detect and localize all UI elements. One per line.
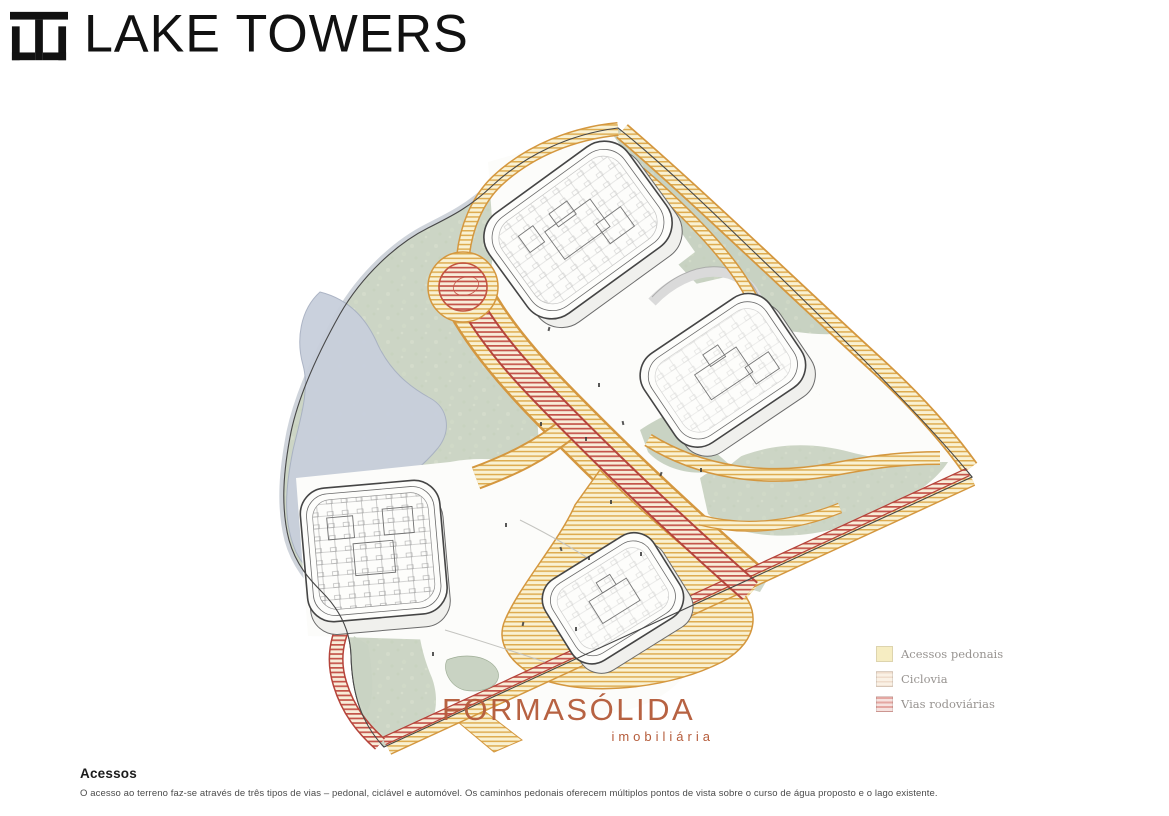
brand-logo[interactable]: LAKE TOWERS <box>10 8 469 64</box>
legend-label: Acessos pedonais <box>901 647 1003 661</box>
lt-monogram-icon <box>10 10 68 64</box>
site-plan <box>255 110 980 760</box>
section-body: O acesso ao terreno faz-se através de tr… <box>80 788 1090 799</box>
acessos-section: Acessos O acesso ao terreno faz-se atrav… <box>80 766 1090 799</box>
legend-item-pedestrian: Acessos pedonais <box>876 646 1003 662</box>
page: LAKE TOWERS <box>0 0 1169 816</box>
legend-label: Vias rodoviárias <box>901 697 995 711</box>
legend-label: Ciclovia <box>901 672 948 686</box>
legend-item-roads: Vias rodoviárias <box>876 696 1003 712</box>
brand-name: LAKE TOWERS <box>84 7 469 60</box>
legend-swatch-cycleway-icon <box>876 671 893 687</box>
section-heading: Acessos <box>80 766 1090 781</box>
site-plan-illustration <box>255 110 980 760</box>
legend-item-cycleway: Ciclovia <box>876 671 1003 687</box>
building-3 <box>298 478 452 637</box>
legend-swatch-pedestrian-icon <box>876 646 893 662</box>
legend-swatch-roads-icon <box>876 696 893 712</box>
map-legend: Acessos pedonais Ciclovia Vias rodoviári… <box>876 646 1003 712</box>
